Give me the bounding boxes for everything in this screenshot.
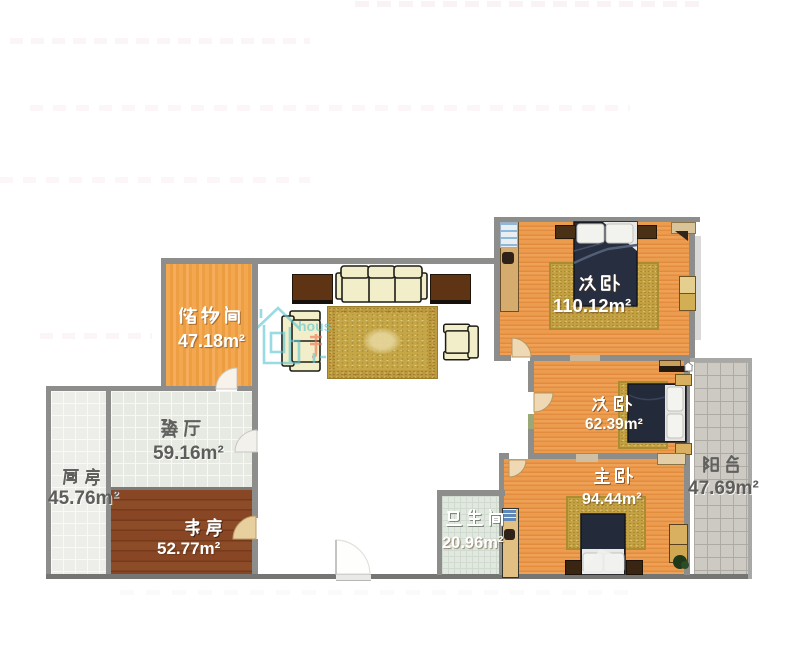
- svg-text:house: house: [298, 318, 332, 334]
